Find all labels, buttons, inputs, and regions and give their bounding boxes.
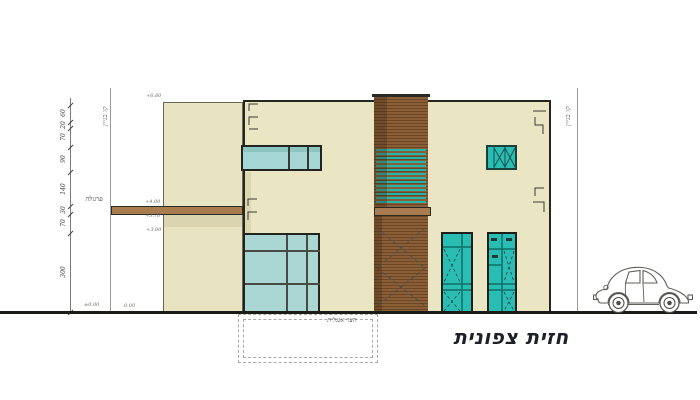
downpipe-bracket-icon [531, 108, 547, 138]
wood-shadow [374, 97, 387, 207]
elevation-marker: +6.80 [146, 94, 162, 99]
ground-floor-window [243, 233, 320, 313]
courtyard-label: חצר אנגלית [312, 316, 372, 324]
window-mullion [306, 235, 308, 313]
building-line-left-label: קו בניין [101, 92, 109, 126]
downpipe-bracket-icon [246, 101, 260, 133]
downpipe-bracket-icon [531, 185, 547, 215]
dimension-label: 70 [61, 130, 67, 144]
window-mullion [245, 283, 320, 285]
small-window-panes [486, 145, 517, 170]
pergola-shadow [164, 215, 242, 227]
strip-window [241, 145, 322, 171]
door-right-panes [487, 232, 517, 313]
elevation-marker: +4.00 [145, 200, 161, 205]
drawing-title: חזית צפונית [446, 325, 576, 349]
door-left-panes [441, 232, 473, 313]
elevation-drawing-canvas: קו בניין קו בניין 60 20 70 90 140 30 70 … [0, 0, 700, 400]
window-mullion [286, 235, 288, 313]
elevation-marker: 0.00 [124, 304, 140, 309]
pergola-label: פרגולה [78, 195, 110, 203]
window-mullion [307, 147, 309, 169]
downpipe-bracket-icon [245, 196, 259, 228]
dimension-label: 30 [61, 203, 67, 217]
pergola-beam [111, 206, 243, 215]
elevation-marker: ±0.00 [84, 303, 100, 308]
dimension-label: 300 [61, 265, 67, 279]
window-mullion [245, 250, 320, 252]
door-swing-dashed-marks [374, 216, 428, 313]
dimension-label: 140 [61, 182, 67, 196]
wood-band-beam [374, 207, 431, 216]
window-mullion [288, 147, 290, 169]
building-line-right-label: קו בניין [564, 92, 572, 126]
building-line-left [110, 88, 111, 313]
building-line-right [577, 88, 578, 313]
elevation-marker: +3.70 [145, 214, 161, 219]
dimension-label: 90 [61, 152, 67, 166]
courtyard-dashed-outline-inner [243, 319, 373, 358]
wood-band-cap [372, 94, 430, 97]
dimension-label: 70 [61, 216, 67, 230]
elevation-marker: +3.00 [146, 228, 162, 233]
vw-beetle-car-icon [593, 260, 693, 314]
